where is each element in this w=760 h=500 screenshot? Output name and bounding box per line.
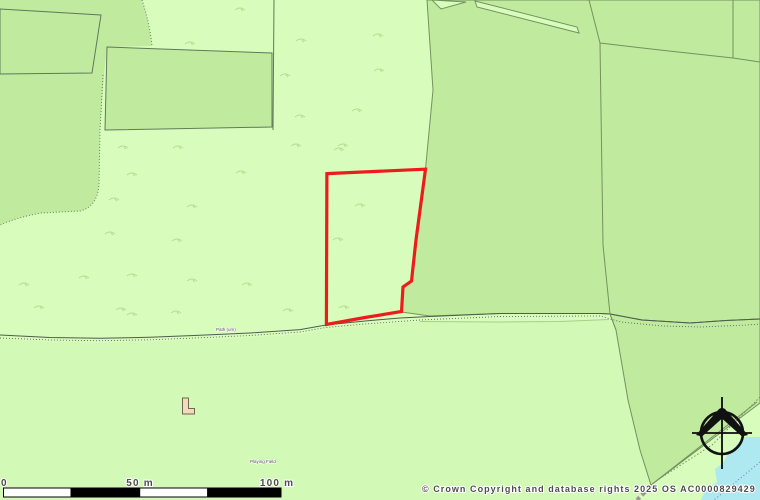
svg-text:100 m: 100 m [260, 478, 294, 489]
svg-text:© Crown Copyright and database: © Crown Copyright and database rights 20… [422, 484, 756, 494]
svg-text:Playing Field: Playing Field [250, 459, 276, 464]
svg-text:0: 0 [1, 478, 8, 489]
svg-text:50 m: 50 m [126, 478, 154, 489]
svg-text:Path (um): Path (um) [216, 327, 236, 332]
